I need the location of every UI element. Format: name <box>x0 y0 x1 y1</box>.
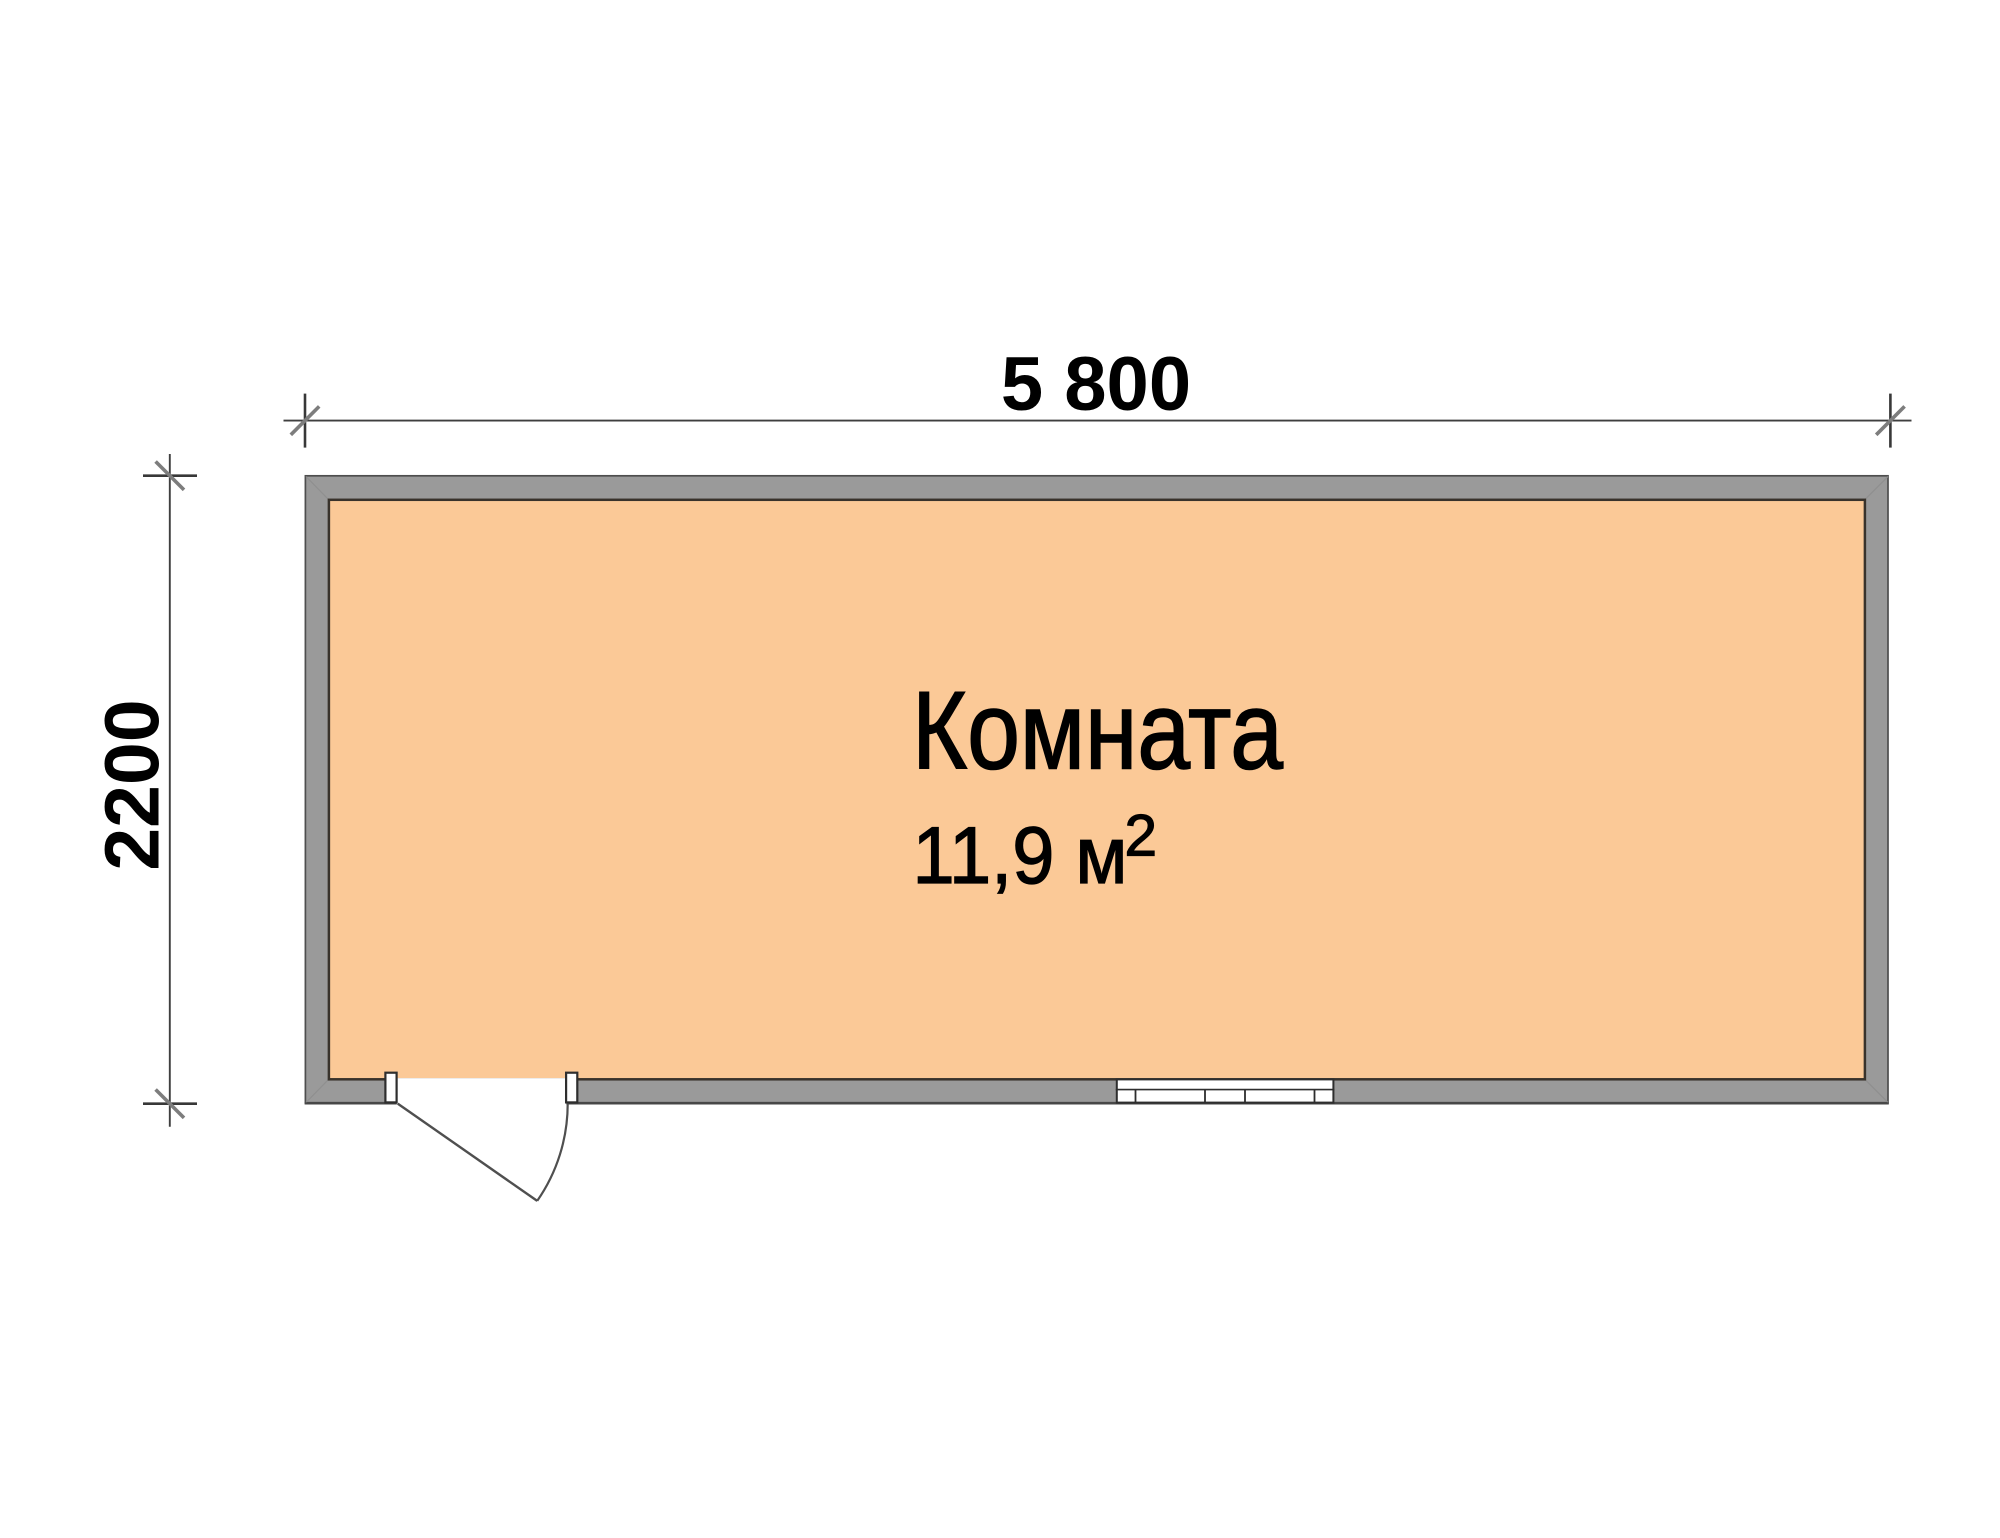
svg-text:2: 2 <box>1125 804 1158 869</box>
svg-text:5 800: 5 800 <box>1001 342 1191 427</box>
svg-text:2200: 2200 <box>89 699 175 870</box>
svg-text:11,9 м: 11,9 м <box>913 811 1128 901</box>
svg-text:Комната: Комната <box>912 669 1284 792</box>
